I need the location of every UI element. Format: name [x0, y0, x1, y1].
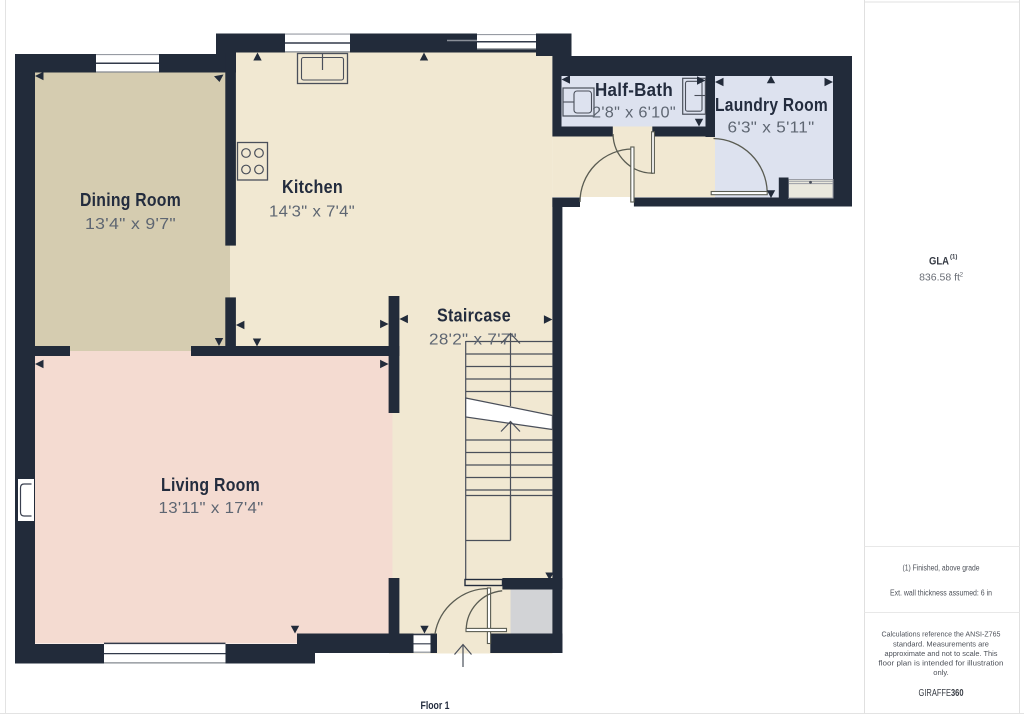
svg-text:floor plan is intended for ill: floor plan is intended for illustration	[879, 659, 1004, 668]
svg-text:836.58 ft: 836.58 ft	[919, 272, 960, 284]
svg-text:2'8" x 6'10": 2'8" x 6'10"	[592, 105, 676, 122]
svg-text:only.: only.	[933, 668, 948, 677]
svg-text:2: 2	[960, 272, 964, 279]
svg-text:Living Room: Living Room	[161, 475, 260, 495]
svg-text:(1): (1)	[950, 255, 957, 261]
svg-text:Floor 1: Floor 1	[421, 700, 450, 712]
svg-text:Kitchen: Kitchen	[282, 177, 343, 197]
svg-text:approximate and not to scale.: approximate and not to scale. This	[885, 649, 998, 658]
svg-text:6'3" x 5'11": 6'3" x 5'11"	[728, 120, 815, 137]
svg-text:(1) Finished, above grade: (1) Finished, above grade	[903, 564, 980, 573]
svg-text:Half-Bath: Half-Bath	[595, 80, 673, 100]
svg-text:28'2" x 7'7": 28'2" x 7'7"	[429, 332, 517, 349]
svg-text:Ext. wall thickness assumed: 6: Ext. wall thickness assumed: 6 in	[890, 589, 992, 598]
svg-text:Staircase: Staircase	[437, 306, 511, 326]
svg-text:Dining Room: Dining Room	[80, 190, 181, 210]
svg-text:14'3" x 7'4": 14'3" x 7'4"	[269, 204, 355, 221]
svg-text:13'11" x 17'4": 13'11" x 17'4"	[159, 500, 264, 517]
svg-text:13'4" x 9'7": 13'4" x 9'7"	[85, 216, 176, 233]
svg-text:Laundry Room: Laundry Room	[715, 95, 828, 115]
svg-text:GLA: GLA	[929, 256, 949, 268]
svg-text:Calculations reference the ANS: Calculations reference the ANSI-Z765	[882, 630, 1001, 639]
svg-text:standard. Measurements are: standard. Measurements are	[893, 640, 989, 649]
svg-text:GIRAFFE360: GIRAFFE360	[919, 688, 964, 699]
